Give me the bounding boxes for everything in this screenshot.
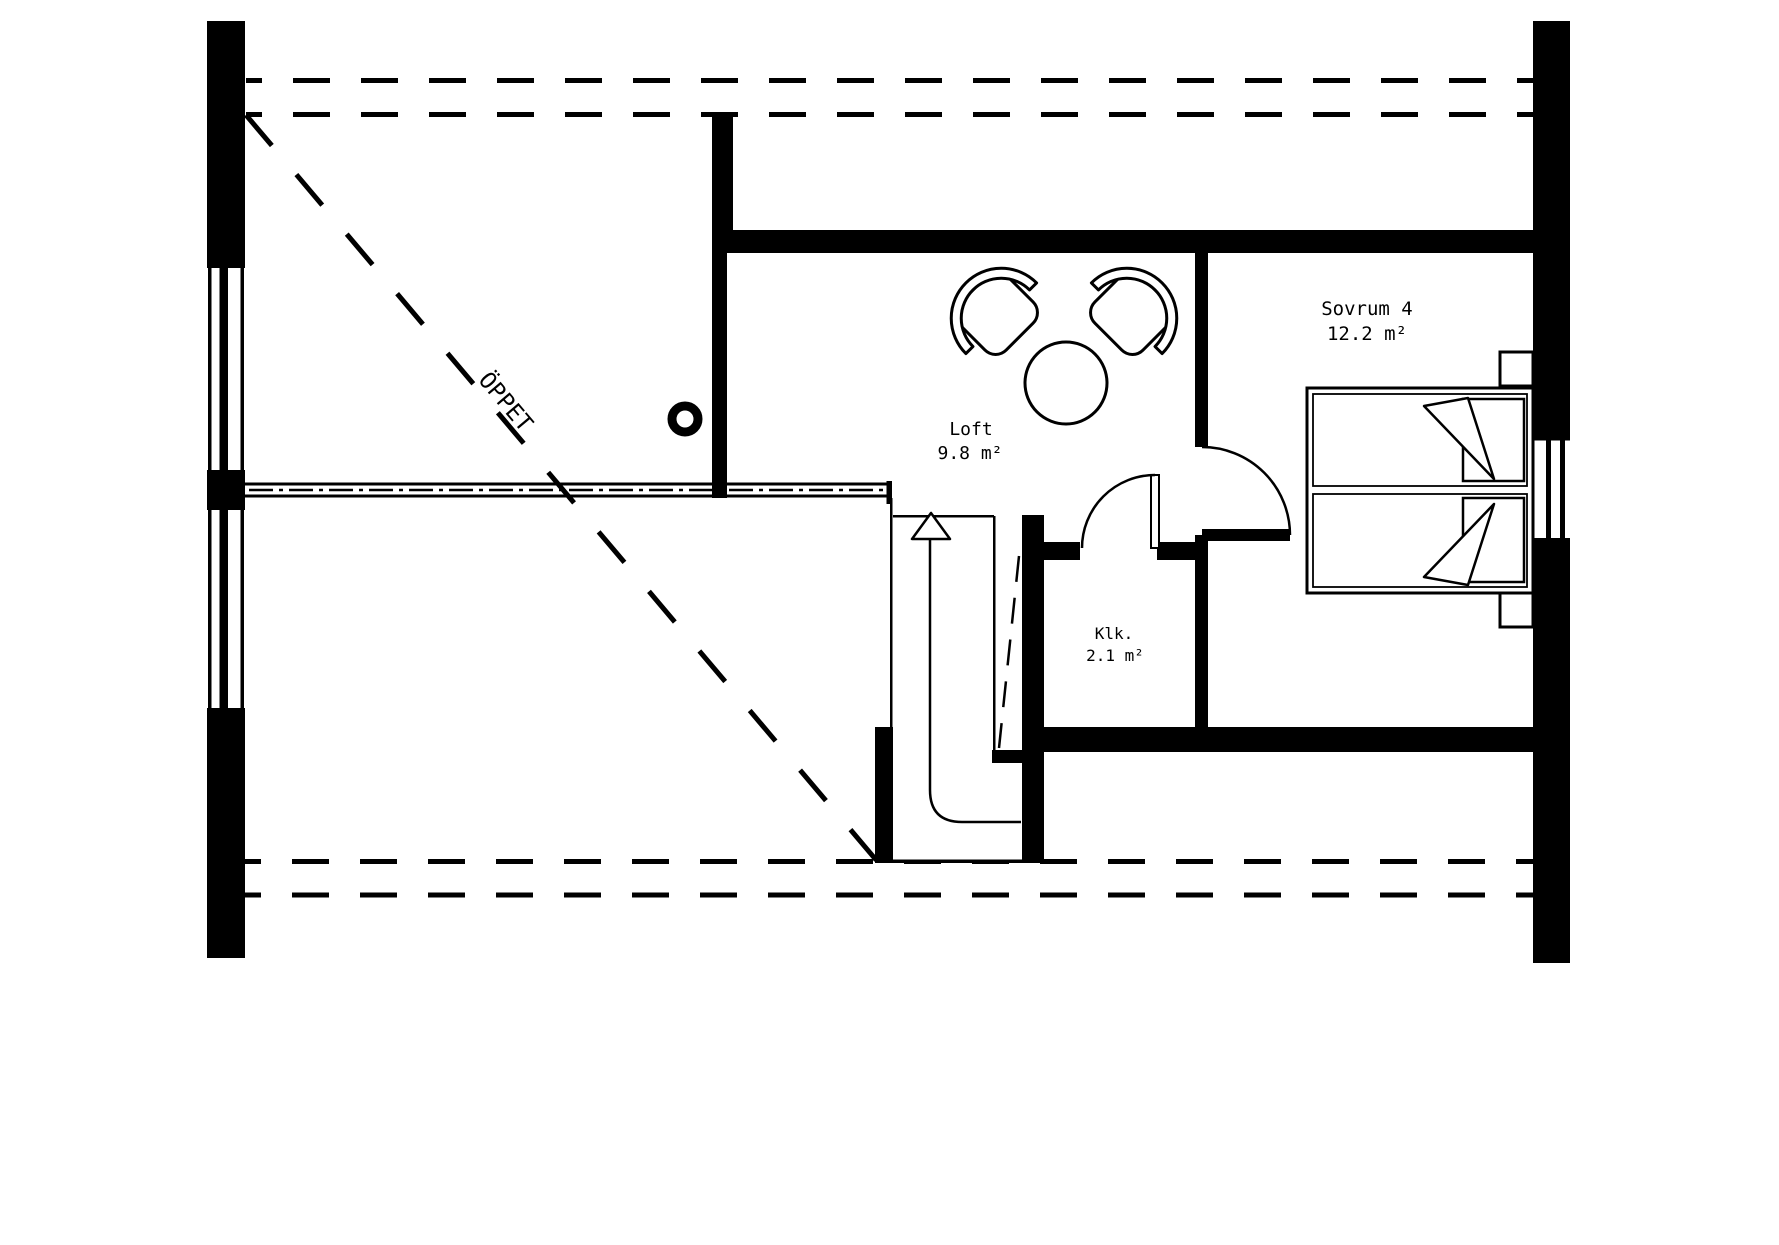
left-wall-middle-pier bbox=[207, 470, 245, 510]
room-label-sovrum4: Sovrum 4 bbox=[1321, 298, 1413, 320]
loft-wall-vertical-upper bbox=[712, 115, 733, 230]
round-table-icon bbox=[1025, 342, 1107, 424]
window-frame-line bbox=[208, 268, 212, 470]
left-wall-lower bbox=[207, 708, 245, 958]
loft-bedroom-divider-wall-lower bbox=[1195, 535, 1208, 752]
stair-well-floor bbox=[893, 498, 1022, 861]
loft-top-wall bbox=[712, 230, 1533, 253]
bedroom-bottom-wall bbox=[1042, 727, 1533, 752]
stair-left-edge-line bbox=[890, 498, 893, 728]
railing-line-bottom bbox=[245, 495, 892, 498]
window-glazing-bar bbox=[1560, 440, 1565, 539]
staircase bbox=[875, 498, 1024, 863]
closet-top-wall-right-jamb bbox=[1157, 542, 1195, 560]
room-area-klk: 2.1 m² bbox=[1086, 646, 1144, 665]
closet-left-wall bbox=[1022, 515, 1044, 863]
room-area-loft: 9.8 m² bbox=[937, 443, 1002, 464]
bedroom-door-leaf bbox=[1202, 529, 1290, 541]
double-bed-icon bbox=[1307, 388, 1533, 593]
railing-line-top bbox=[245, 483, 892, 486]
nightstand-top-icon bbox=[1500, 352, 1533, 386]
stair-top-edge-line bbox=[893, 515, 994, 518]
window-glazing-bar bbox=[220, 268, 229, 470]
window-frame-line bbox=[208, 510, 212, 708]
room-label-klk: Klk. bbox=[1095, 624, 1134, 643]
right-wall-upper bbox=[1533, 21, 1570, 440]
bedroom-furniture bbox=[1307, 352, 1533, 627]
window-glazing-bar bbox=[220, 510, 229, 708]
loft-wall-vertical-lower bbox=[712, 253, 727, 498]
left-wall-upper bbox=[207, 21, 245, 268]
stair-left-wall-block bbox=[875, 727, 893, 863]
stair-bottom-edge-line bbox=[893, 860, 1023, 864]
window-glazing-bar bbox=[1546, 440, 1551, 539]
window-frame-line bbox=[241, 268, 245, 470]
stair-inner-edge-line bbox=[993, 516, 996, 752]
stair-inner-cap bbox=[992, 750, 1024, 763]
loft-bedroom-divider-wall-upper bbox=[1195, 253, 1208, 447]
window-frame-line bbox=[241, 510, 245, 708]
right-wall-lower bbox=[1533, 540, 1570, 963]
closet-door-leaf bbox=[1151, 475, 1159, 548]
closet-top-wall-left-jamb bbox=[1042, 542, 1080, 560]
floor-plan-page: Loft 9.8 m² Sovrum 4 12.2 m² Klk. 2.1 m²… bbox=[0, 0, 1779, 1245]
nightstand-bottom-icon bbox=[1500, 592, 1533, 627]
floor-plan-canvas: Loft 9.8 m² Sovrum 4 12.2 m² Klk. 2.1 m²… bbox=[0, 0, 1779, 1245]
room-area-sovrum4: 12.2 m² bbox=[1327, 323, 1407, 345]
room-label-loft: Loft bbox=[949, 419, 992, 440]
